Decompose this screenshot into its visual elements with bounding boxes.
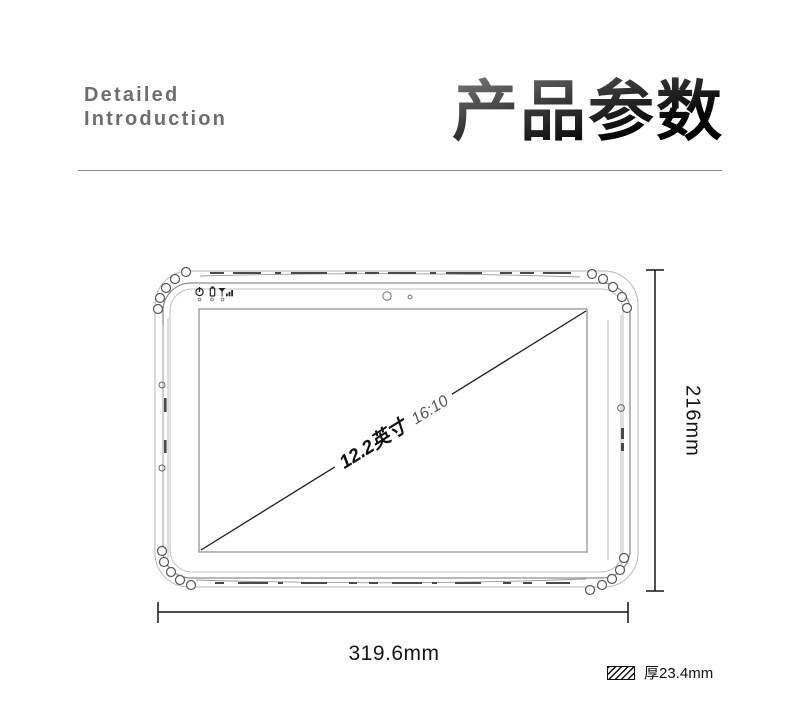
product-spec-page: Detailed Introduction 产品参数 <box>0 0 790 702</box>
width-dimension-line <box>158 602 628 623</box>
thickness-label: 厚23.4mm <box>644 662 713 683</box>
width-dimension-label: 319.6mm <box>348 642 439 666</box>
tablet-drawing <box>0 0 790 702</box>
thickness-note: 厚23.4mm <box>607 662 713 683</box>
light-sensor-icon <box>408 295 412 299</box>
power-icon <box>196 287 203 296</box>
front-camera-icon <box>383 292 391 300</box>
camera-icons <box>383 292 412 300</box>
battery-icon <box>210 286 214 296</box>
hatch-swatch-icon <box>607 666 635 680</box>
led-dots <box>198 298 224 301</box>
height-dimension-label: 216mm <box>681 385 704 457</box>
status-icons <box>196 286 233 301</box>
height-dimension-line <box>646 270 664 591</box>
